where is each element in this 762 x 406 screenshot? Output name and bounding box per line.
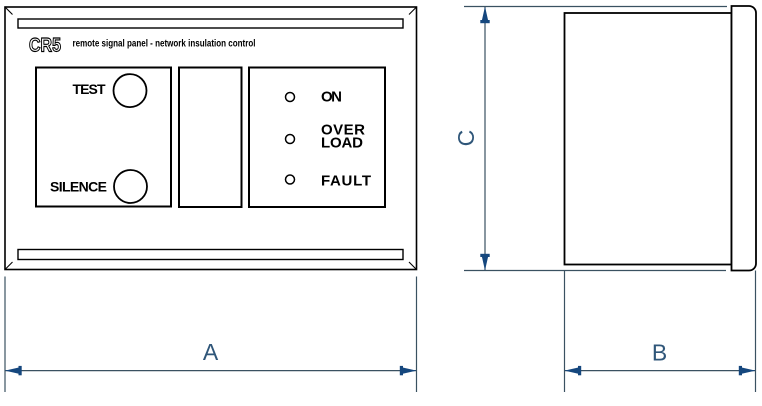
svg-text:SILENCE: SILENCE [50,179,107,195]
svg-text:ON: ON [321,89,342,106]
svg-text:B: B [652,339,667,365]
svg-text:C: C [453,130,479,147]
svg-text:A: A [203,339,219,365]
svg-text:CR5: CR5 [29,34,61,56]
svg-text:TEST: TEST [73,81,106,97]
svg-text:FAULT: FAULT [321,173,371,190]
svg-text:remote signal panel - network: remote signal panel - network insulation… [73,38,256,50]
svg-text:LOAD: LOAD [321,134,363,151]
